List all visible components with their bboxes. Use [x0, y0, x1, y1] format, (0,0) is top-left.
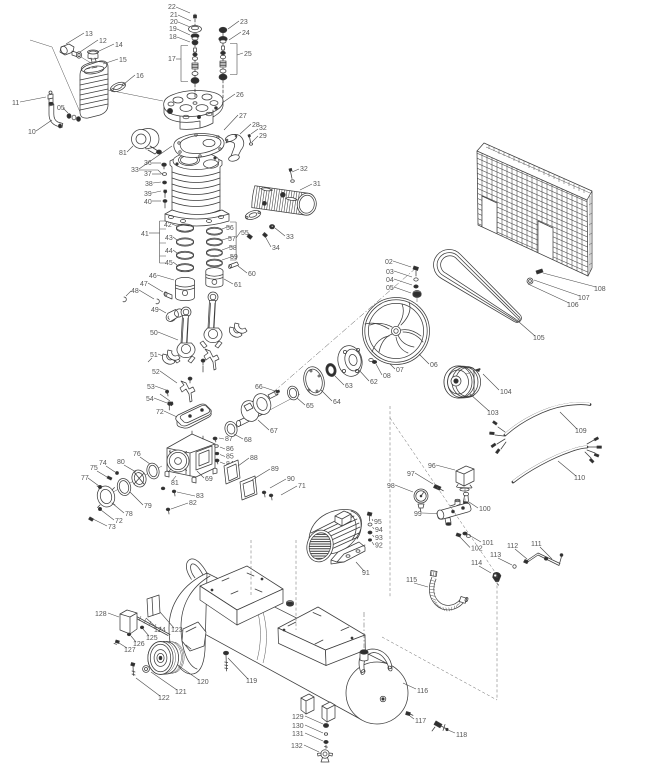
svg-text:19: 19 — [169, 26, 177, 33]
svg-text:11: 11 — [12, 100, 19, 107]
svg-text:37: 37 — [144, 171, 152, 178]
svg-text:75: 75 — [90, 465, 98, 472]
svg-text:32: 32 — [300, 166, 308, 173]
svg-text:16: 16 — [136, 73, 144, 80]
svg-text:34: 34 — [272, 245, 280, 252]
svg-text:69: 69 — [205, 476, 213, 483]
svg-text:87: 87 — [225, 436, 233, 443]
svg-text:64: 64 — [333, 399, 341, 406]
svg-text:29: 29 — [259, 133, 267, 140]
svg-text:78: 78 — [125, 511, 133, 518]
svg-text:67: 67 — [270, 428, 278, 435]
svg-text:85: 85 — [226, 454, 234, 461]
svg-text:33: 33 — [131, 167, 139, 174]
svg-text:99: 99 — [414, 511, 422, 518]
svg-text:31: 31 — [313, 181, 321, 188]
svg-text:125: 125 — [146, 635, 158, 642]
svg-text:68: 68 — [244, 437, 252, 444]
svg-text:36: 36 — [144, 160, 152, 167]
svg-text:132: 132 — [291, 743, 303, 750]
svg-text:88: 88 — [250, 455, 258, 462]
svg-text:81: 81 — [119, 150, 127, 157]
svg-text:10: 10 — [28, 129, 36, 136]
svg-text:06: 06 — [430, 362, 438, 369]
svg-text:97: 97 — [407, 471, 415, 478]
svg-text:118: 118 — [456, 732, 467, 739]
svg-text:66: 66 — [255, 384, 263, 391]
svg-text:83: 83 — [196, 493, 204, 500]
svg-text:49: 49 — [151, 307, 159, 314]
svg-text:33: 33 — [286, 234, 294, 241]
svg-text:96: 96 — [428, 463, 436, 470]
svg-text:42: 42 — [164, 222, 172, 229]
svg-text:40: 40 — [144, 199, 152, 206]
svg-text:08: 08 — [383, 373, 391, 380]
svg-text:41: 41 — [141, 231, 149, 238]
svg-text:05: 05 — [386, 285, 394, 292]
svg-text:76: 76 — [133, 451, 141, 458]
svg-text:94: 94 — [375, 527, 383, 534]
svg-text:82: 82 — [189, 500, 197, 507]
svg-text:52: 52 — [152, 369, 160, 376]
svg-text:72: 72 — [156, 409, 164, 416]
svg-text:59: 59 — [230, 254, 238, 261]
svg-text:90: 90 — [287, 476, 295, 483]
svg-text:18: 18 — [169, 34, 177, 41]
svg-text:123: 123 — [171, 627, 183, 634]
svg-text:130: 130 — [292, 723, 304, 730]
svg-text:54: 54 — [146, 396, 154, 403]
svg-text:48: 48 — [131, 288, 139, 295]
svg-text:80: 80 — [117, 459, 125, 466]
svg-text:128: 128 — [95, 611, 107, 618]
svg-text:46: 46 — [149, 273, 157, 280]
svg-text:22: 22 — [168, 4, 176, 11]
svg-text:73: 73 — [108, 524, 116, 531]
svg-text:100: 100 — [479, 506, 491, 513]
svg-text:13: 13 — [85, 31, 93, 38]
svg-text:65: 65 — [306, 403, 314, 410]
svg-text:03: 03 — [386, 269, 394, 276]
svg-text:12: 12 — [99, 38, 107, 45]
svg-text:62: 62 — [370, 379, 378, 386]
svg-text:71: 71 — [298, 483, 306, 490]
svg-text:116: 116 — [417, 688, 428, 695]
svg-text:86: 86 — [226, 446, 234, 453]
svg-text:23: 23 — [240, 19, 248, 26]
svg-text:50: 50 — [150, 330, 158, 337]
svg-text:02: 02 — [385, 259, 393, 266]
svg-text:43: 43 — [165, 235, 173, 242]
svg-text:131: 131 — [292, 731, 304, 738]
svg-text:72: 72 — [115, 518, 123, 525]
svg-text:92: 92 — [375, 543, 383, 550]
svg-text:112: 112 — [507, 543, 518, 550]
svg-text:39: 39 — [144, 191, 152, 198]
svg-text:45: 45 — [165, 260, 173, 267]
svg-text:113: 113 — [490, 552, 501, 559]
svg-text:115: 115 — [406, 577, 417, 584]
svg-text:129: 129 — [292, 714, 304, 721]
svg-text:14: 14 — [115, 42, 123, 49]
svg-text:124: 124 — [154, 627, 166, 634]
svg-text:127: 127 — [124, 647, 136, 654]
svg-text:79: 79 — [144, 503, 152, 510]
svg-text:98: 98 — [387, 483, 395, 490]
svg-text:20: 20 — [170, 19, 178, 26]
svg-text:104: 104 — [500, 389, 512, 396]
svg-text:91: 91 — [362, 570, 370, 577]
svg-text:51: 51 — [150, 352, 158, 359]
svg-text:93: 93 — [375, 535, 383, 542]
svg-text:53: 53 — [147, 384, 155, 391]
svg-text:61: 61 — [234, 282, 242, 289]
svg-text:17: 17 — [168, 56, 176, 63]
svg-text:63: 63 — [345, 383, 353, 390]
svg-text:25: 25 — [244, 51, 252, 58]
svg-text:27: 27 — [239, 113, 247, 120]
svg-text:21: 21 — [170, 12, 178, 19]
svg-text:38: 38 — [145, 181, 153, 188]
svg-text:117: 117 — [415, 718, 426, 725]
svg-text:77: 77 — [81, 475, 89, 482]
svg-text:44: 44 — [165, 248, 173, 255]
svg-text:74: 74 — [99, 460, 107, 467]
svg-text:26: 26 — [236, 92, 244, 99]
svg-text:114: 114 — [471, 560, 482, 567]
svg-text:04: 04 — [386, 277, 394, 284]
svg-text:32: 32 — [259, 125, 267, 132]
svg-text:95: 95 — [374, 519, 382, 526]
svg-text:55: 55 — [241, 230, 249, 237]
svg-text:15: 15 — [119, 57, 127, 64]
svg-text:60: 60 — [248, 271, 256, 278]
svg-text:07: 07 — [396, 367, 404, 374]
svg-text:89: 89 — [271, 466, 279, 473]
svg-text:47: 47 — [140, 281, 148, 288]
svg-text:24: 24 — [242, 30, 250, 37]
svg-text:101: 101 — [482, 540, 494, 547]
